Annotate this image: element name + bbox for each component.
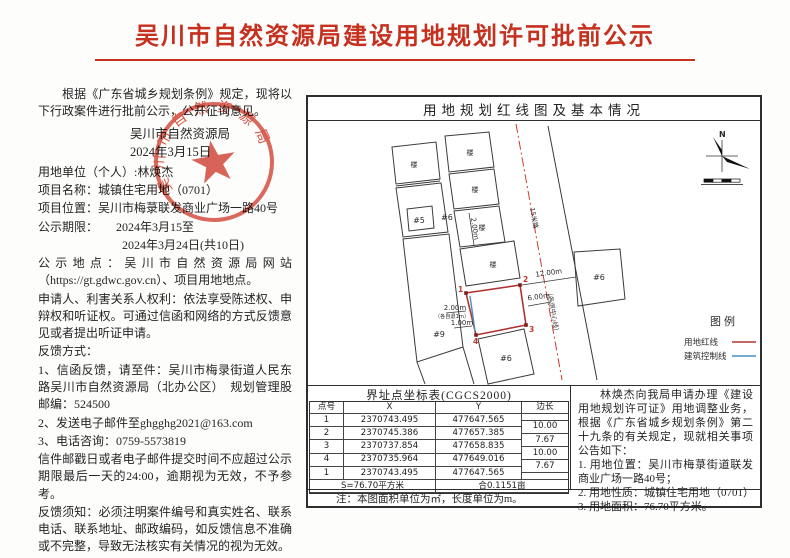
notice-body: 用地单位（个人）:林焕杰项目名称：城镇住宅用地（0701）项目位置：吴川市梅菉联… [38,164,292,556]
coordinate-table-zone: 界址点坐标表(CGCS2000) 点号XY边长12370743.49547764… [308,386,571,490]
y-coordinate-cell: 477649.016 [436,454,522,467]
x-coordinate-cell: 2370743.495 [344,414,436,427]
x-coordinate-cell: 2370745.386 [344,427,436,440]
side-length-cell: 7.67 [522,460,568,473]
side-length-cell: 7.67 [522,434,568,447]
issuer-name: 吴川市自然资源局 [130,125,292,143]
paragraph: 申请人、利害关系人权利：依法享受陈述权、申辩权和听证权。可通过信函和网络的方式反… [38,291,292,343]
parcel-outlines [392,126,625,384]
plot-9-label: #9 [433,330,445,339]
paragraph: 1. 用地位置：吴川市梅菉街道联发商业广场一路40号； [578,459,753,487]
paragraph: 林焕杰向我局申请办理《建设用地规划许可证》用地调整业务，根据《广东省城乡规划条例… [578,389,753,459]
building-glyph: 楼 [472,185,479,194]
corner-1-label: 1 [458,285,463,294]
paragraph: 2、发送电子邮件至ghgghg2021@163.com [38,415,292,432]
paragraph: 项目名称：城镇住宅用地（0701） [38,182,292,199]
point-number-cell: 3 [310,440,344,453]
panel-header: 用地规划红线图及基本情况 [308,97,760,121]
coordinate-table: 点号XY边长12370743.495477647.56522370745.386… [309,401,569,494]
y-coordinate-cell: 477658.835 [436,440,522,453]
dim-1m: 1.00m [451,319,474,327]
building-glyph: 楼 [490,260,497,269]
building-glyph: 楼 [479,223,486,232]
plot-6c-label: #6 [593,273,605,282]
dim-2m: 2.00m [444,304,467,312]
paragraph: 反馈方式： [38,343,292,360]
paragraph: 1、信函反馈，请至件：吴川市梅录街道人民东路吴川市自然资源局（北办公区） 规划管… [38,362,292,414]
y-coordinate-cell: 477647.565 [436,467,522,480]
point-number-cell: 1 [310,414,344,427]
x-coordinate-cell: 2370737.854 [344,440,436,453]
paragraph: 公示地点：吴川市自然资源局网站（https://gt.gdwc.gov.cn）、… [38,255,292,290]
corner-2-label: 2 [523,275,528,284]
north-arrow-icon: N [706,130,750,172]
road-label-1: 15米路 [528,207,541,230]
point-number-cell: 4 [310,454,344,467]
plot-6a-label: #6 [441,213,453,222]
legend-blue-line-label: 建筑控制线 [684,351,727,362]
paragraph: 根据《广东省城乡规划条例》规定，现将以下行政案件进行批前公示，公开征询意见。 [38,86,292,121]
red-line-map: 1 2 3 4 12.00m 6.00m 2.00m （各自退1m） 1.00m… [308,122,760,385]
paragraph: 反馈须知：必须注明案件编号和真实姓名、联系电话、联系地址、邮政编码，如反馈信息不… [38,504,292,556]
building-glyph: 楼 [411,160,418,169]
y-coordinate-cell: 477657.385 [436,427,522,440]
plot-5-label: #5 [413,216,425,225]
x-coordinate-cell: 2370735.964 [344,454,436,467]
legend-title: 图例 [710,314,738,328]
column-header: X [344,402,436,414]
paragraph: 公示期限： 2024年3月15至 [38,219,292,236]
column-header: 边长 [522,402,568,414]
column-header: 点号 [310,402,344,414]
column-header: Y [436,402,522,414]
road-label-2: （各退中心线） [545,289,562,335]
corner-4-label: 4 [473,337,478,346]
plan-panel: 用地规划红线图及基本情况 [306,95,762,508]
scale-bar [701,179,743,185]
paragraph: 信件邮戳日或者电子邮件提交时间不应超过公示期限最后一天的24:00，逾期视为无效… [38,451,292,503]
y-coordinate-cell: 477647.565 [436,414,522,427]
plot-6b-label: #6 [500,354,512,363]
legend-red-line-label: 用地红线 [684,337,719,348]
issue-date: 2024年3月15日 [130,143,292,161]
side-length-spacer [522,414,568,421]
paragraph: 3、电话咨询：0759-5573819 [38,433,292,450]
paragraph: 2024年3月24日(共10日) [38,237,292,254]
page-title: 吴川市自然资源局建设用地规划许可批前公示 [95,16,695,61]
svg-text:N: N [719,130,726,139]
point-number-cell: 2 [310,427,344,440]
x-coordinate-cell: 2370743.495 [344,467,436,480]
paragraph: 项目位置：吴川市梅菉联发商业广场一路40号 [38,200,292,217]
paragraph: 用地单位（个人）:林焕杰 [38,164,292,181]
map-note: 注：本图面积单位为㎡，长度单位为m。 [308,489,760,506]
building-glyph: 楼 [467,148,474,157]
side-length-spacer [522,473,568,480]
side-length-cell: 10.00 [522,447,568,460]
point-number-cell: 1 [310,467,344,480]
signature-block: 吴川市自然资源局 2024年3月15日 [130,125,292,161]
announcement-text: 林焕杰向我局申请办理《建设用地规划许可证》用地调整业务，根据《广东省城乡规划条例… [571,386,760,490]
side-length-cell: 10.00 [522,421,568,434]
corner-3-label: 3 [529,325,534,334]
dim-12m: 12.00m [535,267,563,279]
notice-text-column: 根据《广东省城乡规划条例》规定，现将以下行政案件进行批前公示，公开征询意见。 吴… [38,86,292,557]
map-legend: 图例 用地红线 建筑控制线 [684,314,756,362]
notice-intro: 根据《广东省城乡规划条例》规定，现将以下行政案件进行批前公示，公开征询意见。 [38,86,292,121]
coordinate-table-title: 界址点坐标表(CGCS2000) [308,387,570,401]
